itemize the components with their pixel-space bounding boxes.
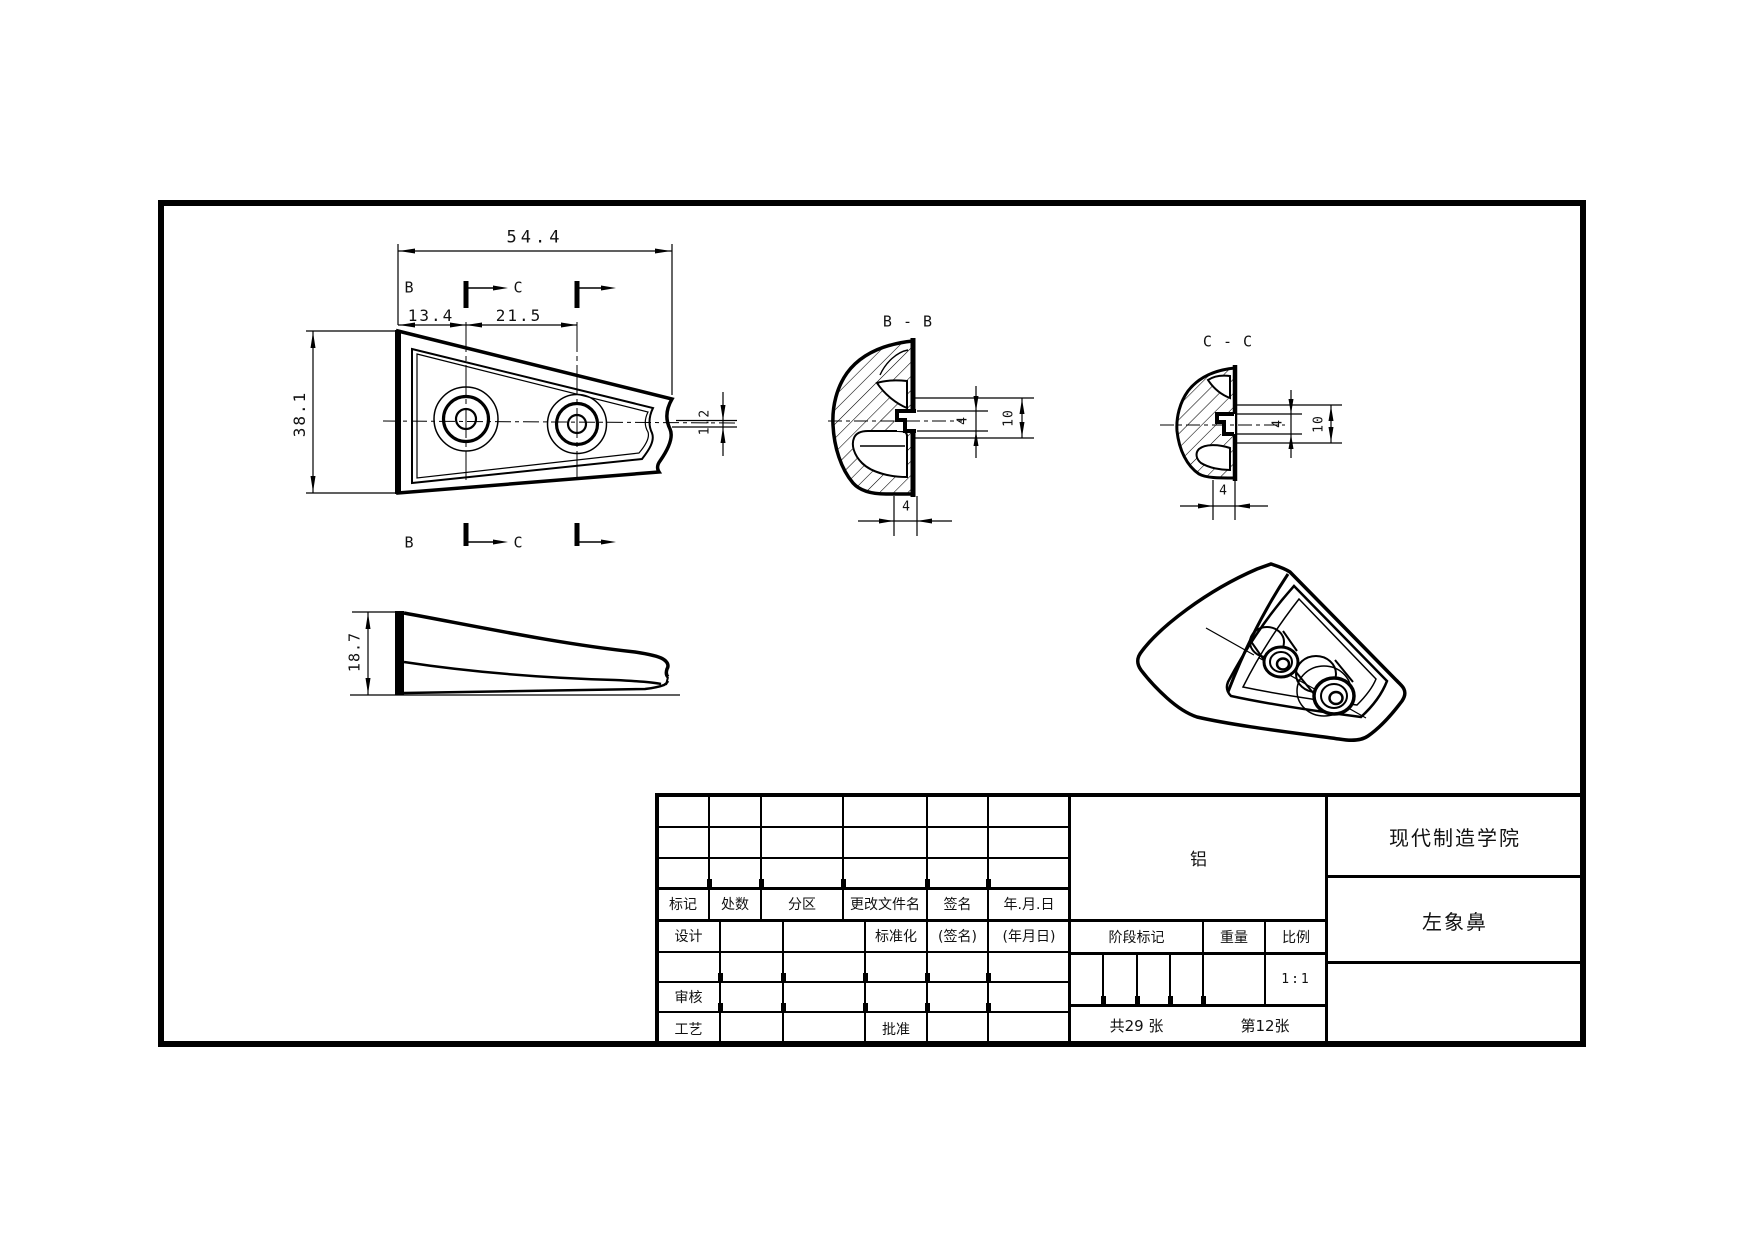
plan-dim-width-text: 54.4 bbox=[507, 230, 564, 247]
tb-nub bbox=[1101, 996, 1106, 1005]
section-cc-title: C - C bbox=[1203, 335, 1253, 350]
tb-line bbox=[655, 826, 1070, 828]
tb-row-standardization: 标准化 bbox=[865, 920, 927, 952]
side-bottom-edge bbox=[404, 681, 668, 693]
plan-inner-rim-1 bbox=[412, 349, 653, 483]
tb-row-process: 工艺 bbox=[657, 1012, 720, 1045]
tb-row-check: 审核 bbox=[657, 982, 720, 1012]
tb-nub bbox=[718, 973, 723, 982]
tb-nub bbox=[781, 1003, 786, 1012]
tb-nub bbox=[986, 879, 991, 888]
drawing-sheet: 54.4 13.4 21.5 38.1 1.2 B C B - B 4 10 4… bbox=[0, 0, 1753, 1240]
tb-nub bbox=[1135, 996, 1140, 1005]
tb-sheet-number: 第12张 bbox=[1203, 1005, 1327, 1045]
section-bb-view bbox=[828, 338, 1034, 536]
tb-header-signature: 签名 bbox=[927, 888, 988, 920]
drawing-linework bbox=[0, 0, 1753, 1240]
side-mid-curve bbox=[404, 662, 661, 684]
plan-inner-rim-2 bbox=[417, 354, 648, 478]
side-tip-edge bbox=[666, 677, 668, 685]
plan-dim-38-1 bbox=[306, 331, 396, 493]
tb-nub bbox=[986, 973, 991, 982]
plan-dim-hole-spacing-text: 21.5 bbox=[496, 308, 543, 324]
tb-header-date: 年.月.日 bbox=[988, 888, 1070, 920]
side-section-label-c: C bbox=[513, 536, 522, 551]
bb-dim-boss-text: 10 bbox=[1003, 409, 1016, 427]
section-cc-view bbox=[1160, 365, 1342, 520]
tb-row-approve: 批准 bbox=[865, 1012, 927, 1045]
tb-nub bbox=[759, 879, 764, 888]
iso-face-outline bbox=[1227, 586, 1387, 717]
tb-row-date-hint: (年月日) bbox=[988, 920, 1070, 952]
tb-scale: 比例 bbox=[1265, 920, 1327, 953]
side-section-label-b: B bbox=[404, 536, 413, 551]
tb-nub bbox=[925, 1003, 930, 1012]
tb-line bbox=[655, 857, 1070, 859]
tb-nub bbox=[863, 1003, 868, 1012]
cc-dim-boss-text: 10 bbox=[1313, 415, 1326, 433]
plan-dim-height-text: 38.1 bbox=[292, 391, 308, 438]
bb-dim-hole-text: 4 bbox=[957, 417, 970, 425]
tb-header-mark: 标记 bbox=[657, 888, 709, 920]
plan-section-label-b-top: B bbox=[404, 281, 413, 296]
tb-part-name: 左象鼻 bbox=[1327, 877, 1583, 963]
tb-nub bbox=[781, 973, 786, 982]
tb-stage-mark: 阶段标记 bbox=[1070, 920, 1203, 953]
cc-dim-wall-text: 4 bbox=[1219, 485, 1227, 498]
tb-company: 现代制造学院 bbox=[1327, 795, 1583, 877]
bb-dim-wall-text: 4 bbox=[902, 501, 910, 514]
tb-header-places: 处数 bbox=[709, 888, 761, 920]
tb-nub bbox=[1201, 996, 1206, 1005]
tb-scale-value: 1:1 bbox=[1265, 953, 1327, 1005]
side-dim-height-text: 18.7 bbox=[348, 632, 363, 672]
tb-nub bbox=[925, 973, 930, 982]
side-back-face bbox=[395, 611, 404, 695]
tb-row-signature-hint: (签名) bbox=[927, 920, 988, 952]
side-section-markers-bottom bbox=[464, 523, 617, 546]
tb-header-zone: 分区 bbox=[761, 888, 843, 920]
tb-weight: 重量 bbox=[1203, 920, 1265, 953]
tb-nub bbox=[925, 879, 930, 888]
tb-header-changed-file: 更改文件名 bbox=[843, 888, 927, 920]
section-bb-title: B - B bbox=[883, 315, 933, 330]
tb-nub bbox=[1168, 996, 1173, 1005]
plan-dim-hole1-offset-text: 13.4 bbox=[408, 308, 455, 324]
plan-dim-tip-text: 1.2 bbox=[699, 409, 712, 435]
plan-centerline-horizontal bbox=[383, 421, 736, 423]
tb-nub bbox=[863, 973, 868, 982]
tb-nub bbox=[707, 879, 712, 888]
tb-material: 铝 bbox=[1070, 795, 1327, 920]
plan-section-markers-top bbox=[464, 281, 617, 308]
tb-nub bbox=[841, 879, 846, 888]
tb-sheets-total: 共29 张 bbox=[1070, 1005, 1203, 1045]
tb-nub bbox=[986, 1003, 991, 1012]
cc-dim-hole-text: 4 bbox=[1272, 420, 1285, 428]
tb-row-design: 设计 bbox=[657, 920, 720, 952]
plan-section-label-c-top: C bbox=[513, 281, 522, 296]
isometric-view bbox=[1138, 564, 1405, 740]
